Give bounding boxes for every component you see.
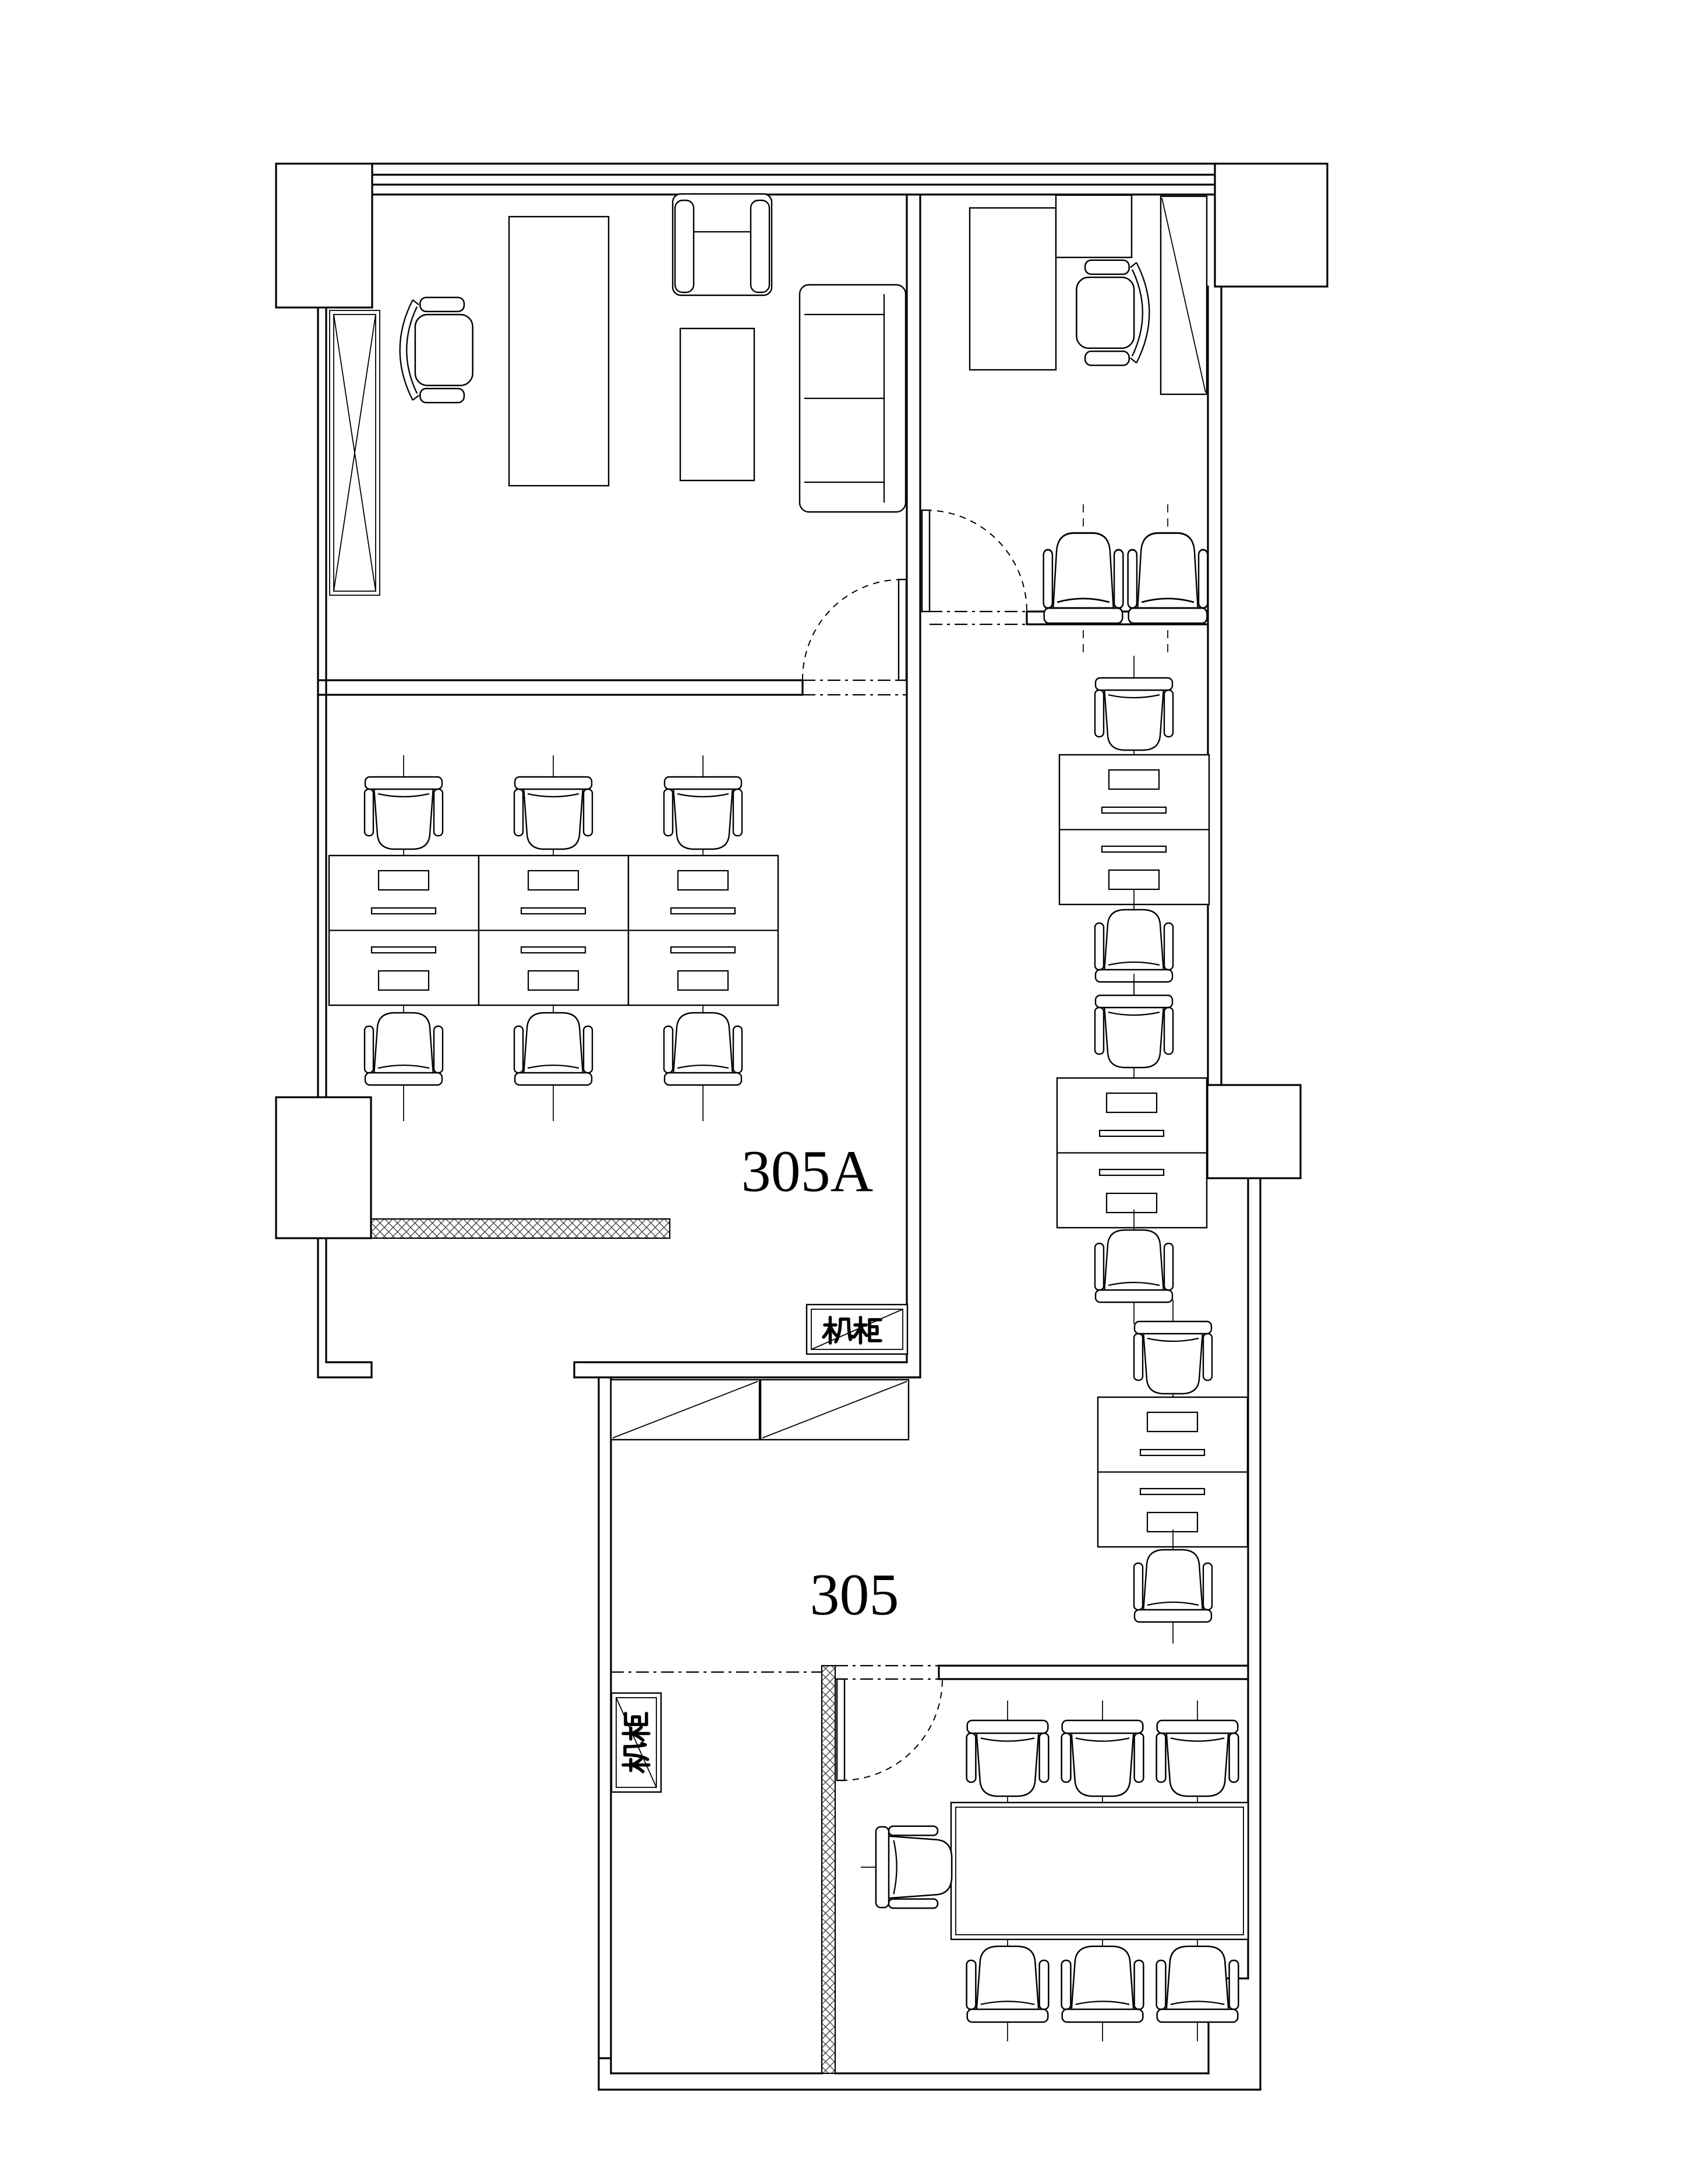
door-leaf	[899, 579, 906, 680]
room-label-305a: 305A	[741, 1139, 874, 1204]
executive-chair	[400, 298, 473, 403]
door-leaf	[837, 1679, 845, 1780]
task-chair	[1095, 1230, 1173, 1302]
conference-room-furniture	[861, 1701, 1248, 2041]
conference-chair	[1062, 1946, 1144, 2022]
executive-chair	[1076, 260, 1149, 366]
pier-mid-right	[1207, 1085, 1301, 1178]
task-chair	[664, 1013, 742, 1085]
workstation-desk	[329, 856, 479, 1005]
floor-plan-canvas: 机柜 机柜	[0, 0, 1689, 2184]
floor-plan-page: 机柜 机柜	[0, 0, 1689, 2184]
door-leaf	[922, 510, 930, 612]
workstation-desk	[1059, 755, 1209, 904]
conference-chair	[1157, 1720, 1239, 1796]
desk-return	[1056, 195, 1132, 257]
task-chair	[664, 777, 742, 849]
door-conference	[835, 1666, 942, 1780]
workstation-desk	[1098, 1397, 1248, 1547]
storage-cabinet	[611, 1380, 759, 1440]
hatched-wall-conference	[822, 1666, 835, 2073]
tall-cabinet	[1161, 196, 1207, 394]
conference-chair	[876, 1826, 952, 1909]
door-swing-arc	[841, 1679, 942, 1780]
task-chair	[365, 777, 443, 849]
task-chair	[1134, 1550, 1212, 1622]
storage-cabinet	[761, 1380, 909, 1440]
server-rack-305: 机柜	[612, 1693, 661, 1792]
west-office-furniture	[400, 194, 906, 512]
task-chair	[1095, 678, 1173, 750]
server-rack-305a: 机柜	[807, 1305, 907, 1354]
open-office-305a-workstations	[329, 755, 778, 1121]
room-label-305: 305	[810, 1562, 899, 1628]
hatched-sill-horizontal	[371, 1219, 670, 1238]
pier-mid-left	[276, 1097, 371, 1238]
task-chair	[1095, 910, 1173, 982]
task-chair	[1095, 995, 1173, 1068]
storage-cabinets	[611, 1380, 909, 1440]
conference-table	[951, 1803, 1248, 1939]
conference-chair	[967, 1720, 1049, 1796]
conference-chair	[1062, 1720, 1144, 1796]
door-east-office	[922, 510, 1027, 624]
x-braced-window	[330, 310, 380, 595]
two-seat-sofa	[800, 285, 906, 512]
task-chair	[365, 1013, 443, 1085]
task-chair	[514, 777, 592, 849]
task-chair	[1134, 1321, 1212, 1394]
executive-desk	[970, 208, 1056, 370]
door-swing-arc	[803, 579, 902, 680]
door-swing-arc	[925, 510, 1027, 612]
armchair	[673, 194, 772, 295]
pier-top-right	[1215, 164, 1327, 287]
coffee-table	[680, 328, 754, 480]
workstation-desk	[1057, 1078, 1207, 1228]
conference-chair	[967, 1946, 1049, 2022]
workstation-desk	[628, 856, 778, 1005]
task-chair	[514, 1013, 592, 1085]
east-office-furniture	[970, 195, 1207, 656]
executive-desk	[509, 217, 609, 486]
waiting-chair	[1044, 533, 1123, 623]
conference-chair	[1157, 1946, 1239, 2022]
workstation-desk	[479, 856, 628, 1005]
pier-top-left	[276, 164, 372, 308]
waiting-chair	[1128, 533, 1208, 623]
door-west-office	[803, 579, 907, 695]
